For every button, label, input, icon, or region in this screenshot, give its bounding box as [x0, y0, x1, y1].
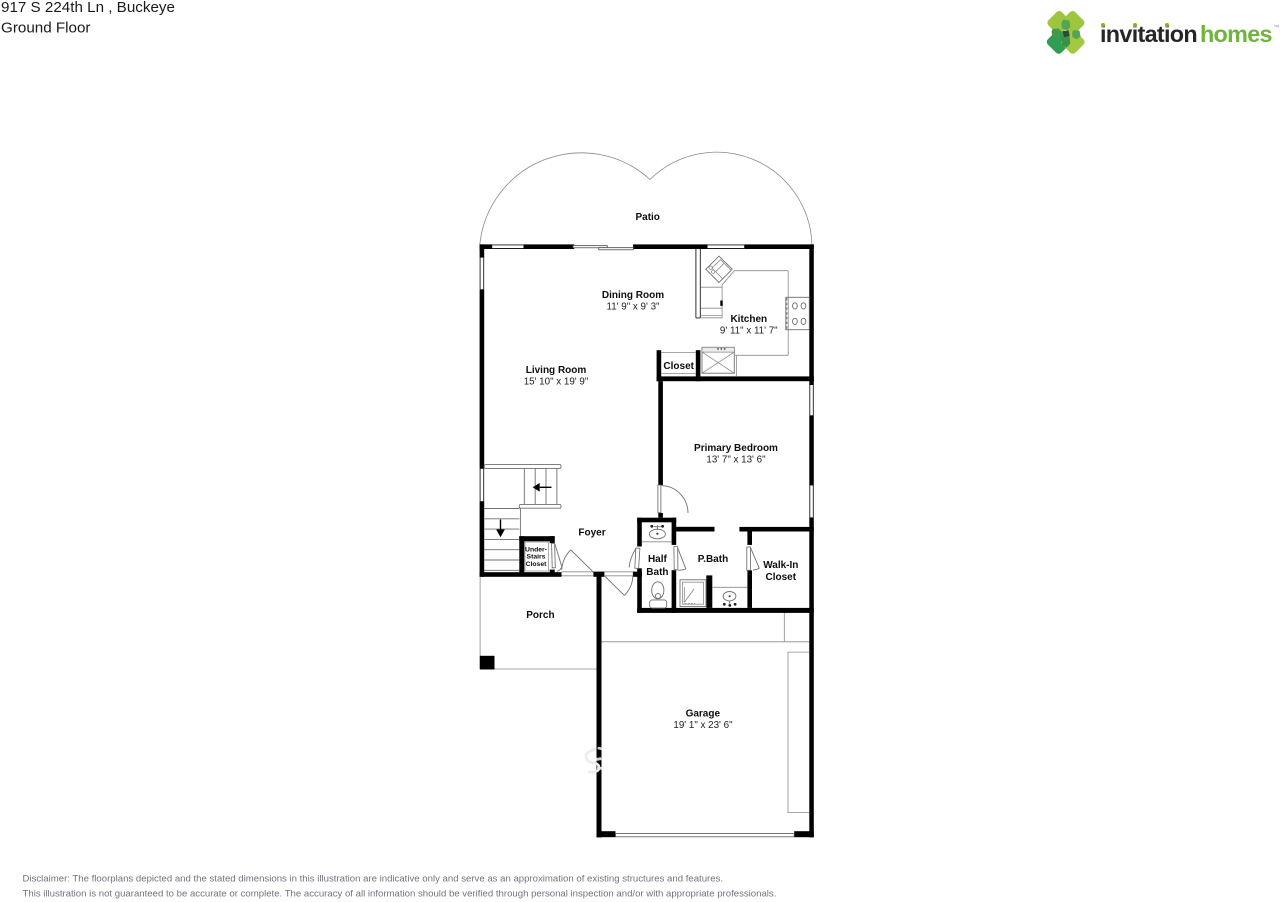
svg-text:™: ™ [1274, 24, 1280, 31]
svg-text:Dining Room: Dining Room [602, 290, 664, 301]
svg-text:Bath: Bath [646, 567, 668, 578]
svg-text:Foyer: Foyer [578, 528, 605, 539]
svg-text:Stairs: Stairs [527, 553, 546, 560]
svg-text:Walk-In: Walk-In [763, 560, 798, 571]
svg-text:Porch: Porch [526, 610, 554, 621]
svg-text:19' 1" x 23' 6": 19' 1" x 23' 6" [673, 720, 733, 731]
svg-text:invitationhomes: invitationhomes [1100, 21, 1273, 47]
svg-text:Under-: Under- [525, 546, 547, 553]
svg-text:Closet: Closet [526, 561, 548, 568]
svg-text:9' 11" x 11' 7": 9' 11" x 11' 7" [720, 326, 778, 337]
svg-text:Half: Half [648, 554, 668, 565]
svg-text:Living Room: Living Room [526, 365, 587, 376]
svg-text:P.Bath: P.Bath [698, 554, 728, 565]
svg-text:Closet: Closet [766, 572, 797, 583]
svg-text:This illustration is not guara: This illustration is not guaranteed to b… [23, 888, 777, 899]
svg-text:Patio: Patio [635, 212, 659, 223]
svg-text:Disclaimer: The floorplans dep: Disclaimer: The floorplans depicted and … [23, 874, 724, 885]
svg-text:Kitchen: Kitchen [730, 314, 767, 325]
svg-text:Ground Floor: Ground Floor [1, 19, 90, 36]
svg-text:11' 9" x 9' 3": 11' 9" x 9' 3" [607, 302, 661, 313]
svg-text:13' 7" x 13' 6": 13' 7" x 13' 6" [706, 455, 766, 466]
svg-text:Primary Bedroom: Primary Bedroom [694, 443, 778, 454]
svg-text:Garage: Garage [686, 709, 721, 720]
svg-text:15' 10" x 19' 9": 15' 10" x 19' 9" [524, 377, 589, 388]
svg-text:Closet: Closet [663, 361, 694, 372]
svg-text:917 S 224th Ln , Buckeye: 917 S 224th Ln , Buckeye [1, 0, 175, 16]
